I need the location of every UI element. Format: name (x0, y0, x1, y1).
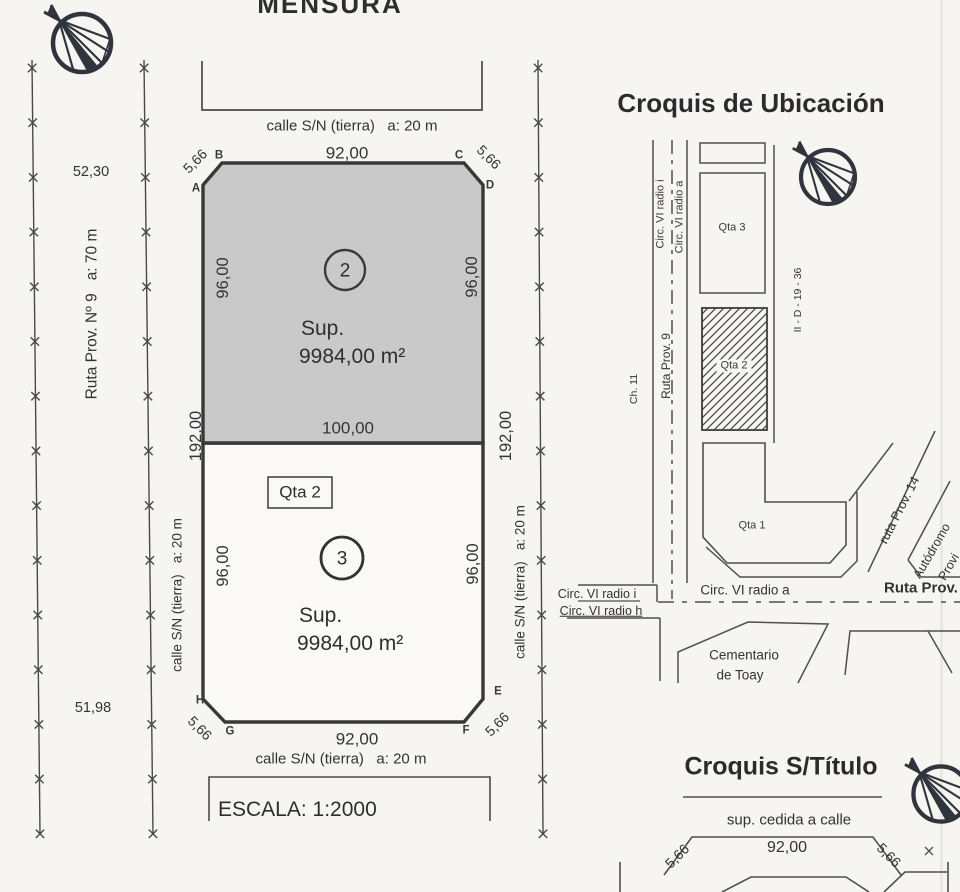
street-label-left: calle S/N (tierra) a: 20 m (170, 518, 184, 672)
road-circ-vi-radio-a-horizontal: Circ. VI radio a (700, 583, 789, 597)
croquis-ubicacion-title: Croquis de Ubicación (617, 90, 884, 116)
road-circ-vi-radio-i-vertical: Circ. VI radio i (656, 179, 667, 248)
parcel-2-side-right: 96,00 (464, 256, 481, 297)
north-icon-titulo (905, 758, 960, 822)
street-label-bottom: calle S/N (tierra) a: 20 m (256, 752, 427, 767)
parcel-2-boundary (203, 163, 483, 443)
parcel-3-number: 3 (337, 550, 348, 569)
croquis-qta1-block (703, 443, 846, 563)
road-circ-vi-radio-a-vertical: Circ. VI radio a (675, 181, 686, 254)
road-circ-vi-radio-i-left: Circ. VI radio i (558, 588, 637, 601)
corner-f: F (462, 725, 469, 737)
corner-c: C (455, 150, 463, 162)
corner-d: D (486, 180, 494, 192)
qta2-block-label: Qta 2 (279, 484, 321, 501)
corner-e: E (494, 686, 502, 698)
north-icon-ubicacion (793, 142, 855, 204)
corner-g: G (226, 726, 235, 738)
croquis-titulo-title: Croquis S/Título (684, 755, 877, 780)
parcel-3-area: 9984,00 m² (297, 633, 403, 654)
street-label-top: calle S/N (tierra) a: 20 m (267, 119, 438, 134)
parcel-3-side-left: 96,00 (215, 545, 232, 586)
street-label-right: calle S/N (tierra) a: 20 m (513, 505, 527, 659)
road-ch-11: Ch. 11 (629, 374, 640, 404)
corner-a: A (192, 183, 200, 195)
dist-north-label: 52,30 (73, 165, 109, 180)
croquis-titulo-subtitle: sup. cedida a calle (727, 813, 851, 828)
corner-b: B (215, 150, 223, 162)
parcel-2-number: 2 (340, 262, 351, 281)
croquis-qta2-label: Qta 2 (717, 360, 752, 373)
corner-h: H (196, 695, 204, 707)
croquis-titulo-width: 92,00 (767, 840, 807, 856)
road-ruta-prov-9: Ruta Prov. 9 (660, 333, 672, 399)
scale-label: ESCALA: 1:2000 (218, 799, 377, 820)
road-circ-vi-radio-h-left: Circ. VI radio h (560, 605, 643, 618)
croquis-qta3-label: Qta 3 (719, 223, 746, 234)
block-north-outline (202, 61, 482, 110)
route-left-label: Ruta Prov. Nº 9 a: 70 m (84, 229, 100, 400)
scan-streak (940, 0, 943, 892)
parcel-3-side-right: 96,00 (465, 543, 482, 584)
parcel-3-boundary (203, 443, 483, 722)
dim-side-left-total: 192,00 (188, 411, 205, 461)
cementerio-label-line2: de Toay (716, 668, 763, 682)
parcel-2-area: 9984,00 m² (299, 346, 405, 367)
survey-plan-page: MENSURA calle S/N (tierra) a: 20 m 92,00… (0, 0, 960, 892)
dim-width-bottom: 92,00 (336, 731, 379, 748)
dim-side-right-total: 192,00 (498, 411, 515, 461)
dim-width-middle: 100,00 (322, 420, 374, 437)
dist-south-label: 51,98 (75, 701, 111, 716)
parcel-2-sup-label: Sup. (301, 318, 344, 339)
cadastral-code: II - D - 19 - 36 (793, 268, 804, 333)
page-title: MENSURA (257, 0, 402, 17)
dim-width-top: 92,00 (326, 145, 369, 162)
north-icon-main (44, 5, 111, 72)
croquis-qta1-label: Qta 1 (739, 521, 766, 532)
cementerio-label-line1: Cementario (709, 648, 779, 662)
parcel-2-side-left: 96,00 (215, 257, 232, 298)
parcel-3-sup-label: Sup. (299, 605, 342, 626)
